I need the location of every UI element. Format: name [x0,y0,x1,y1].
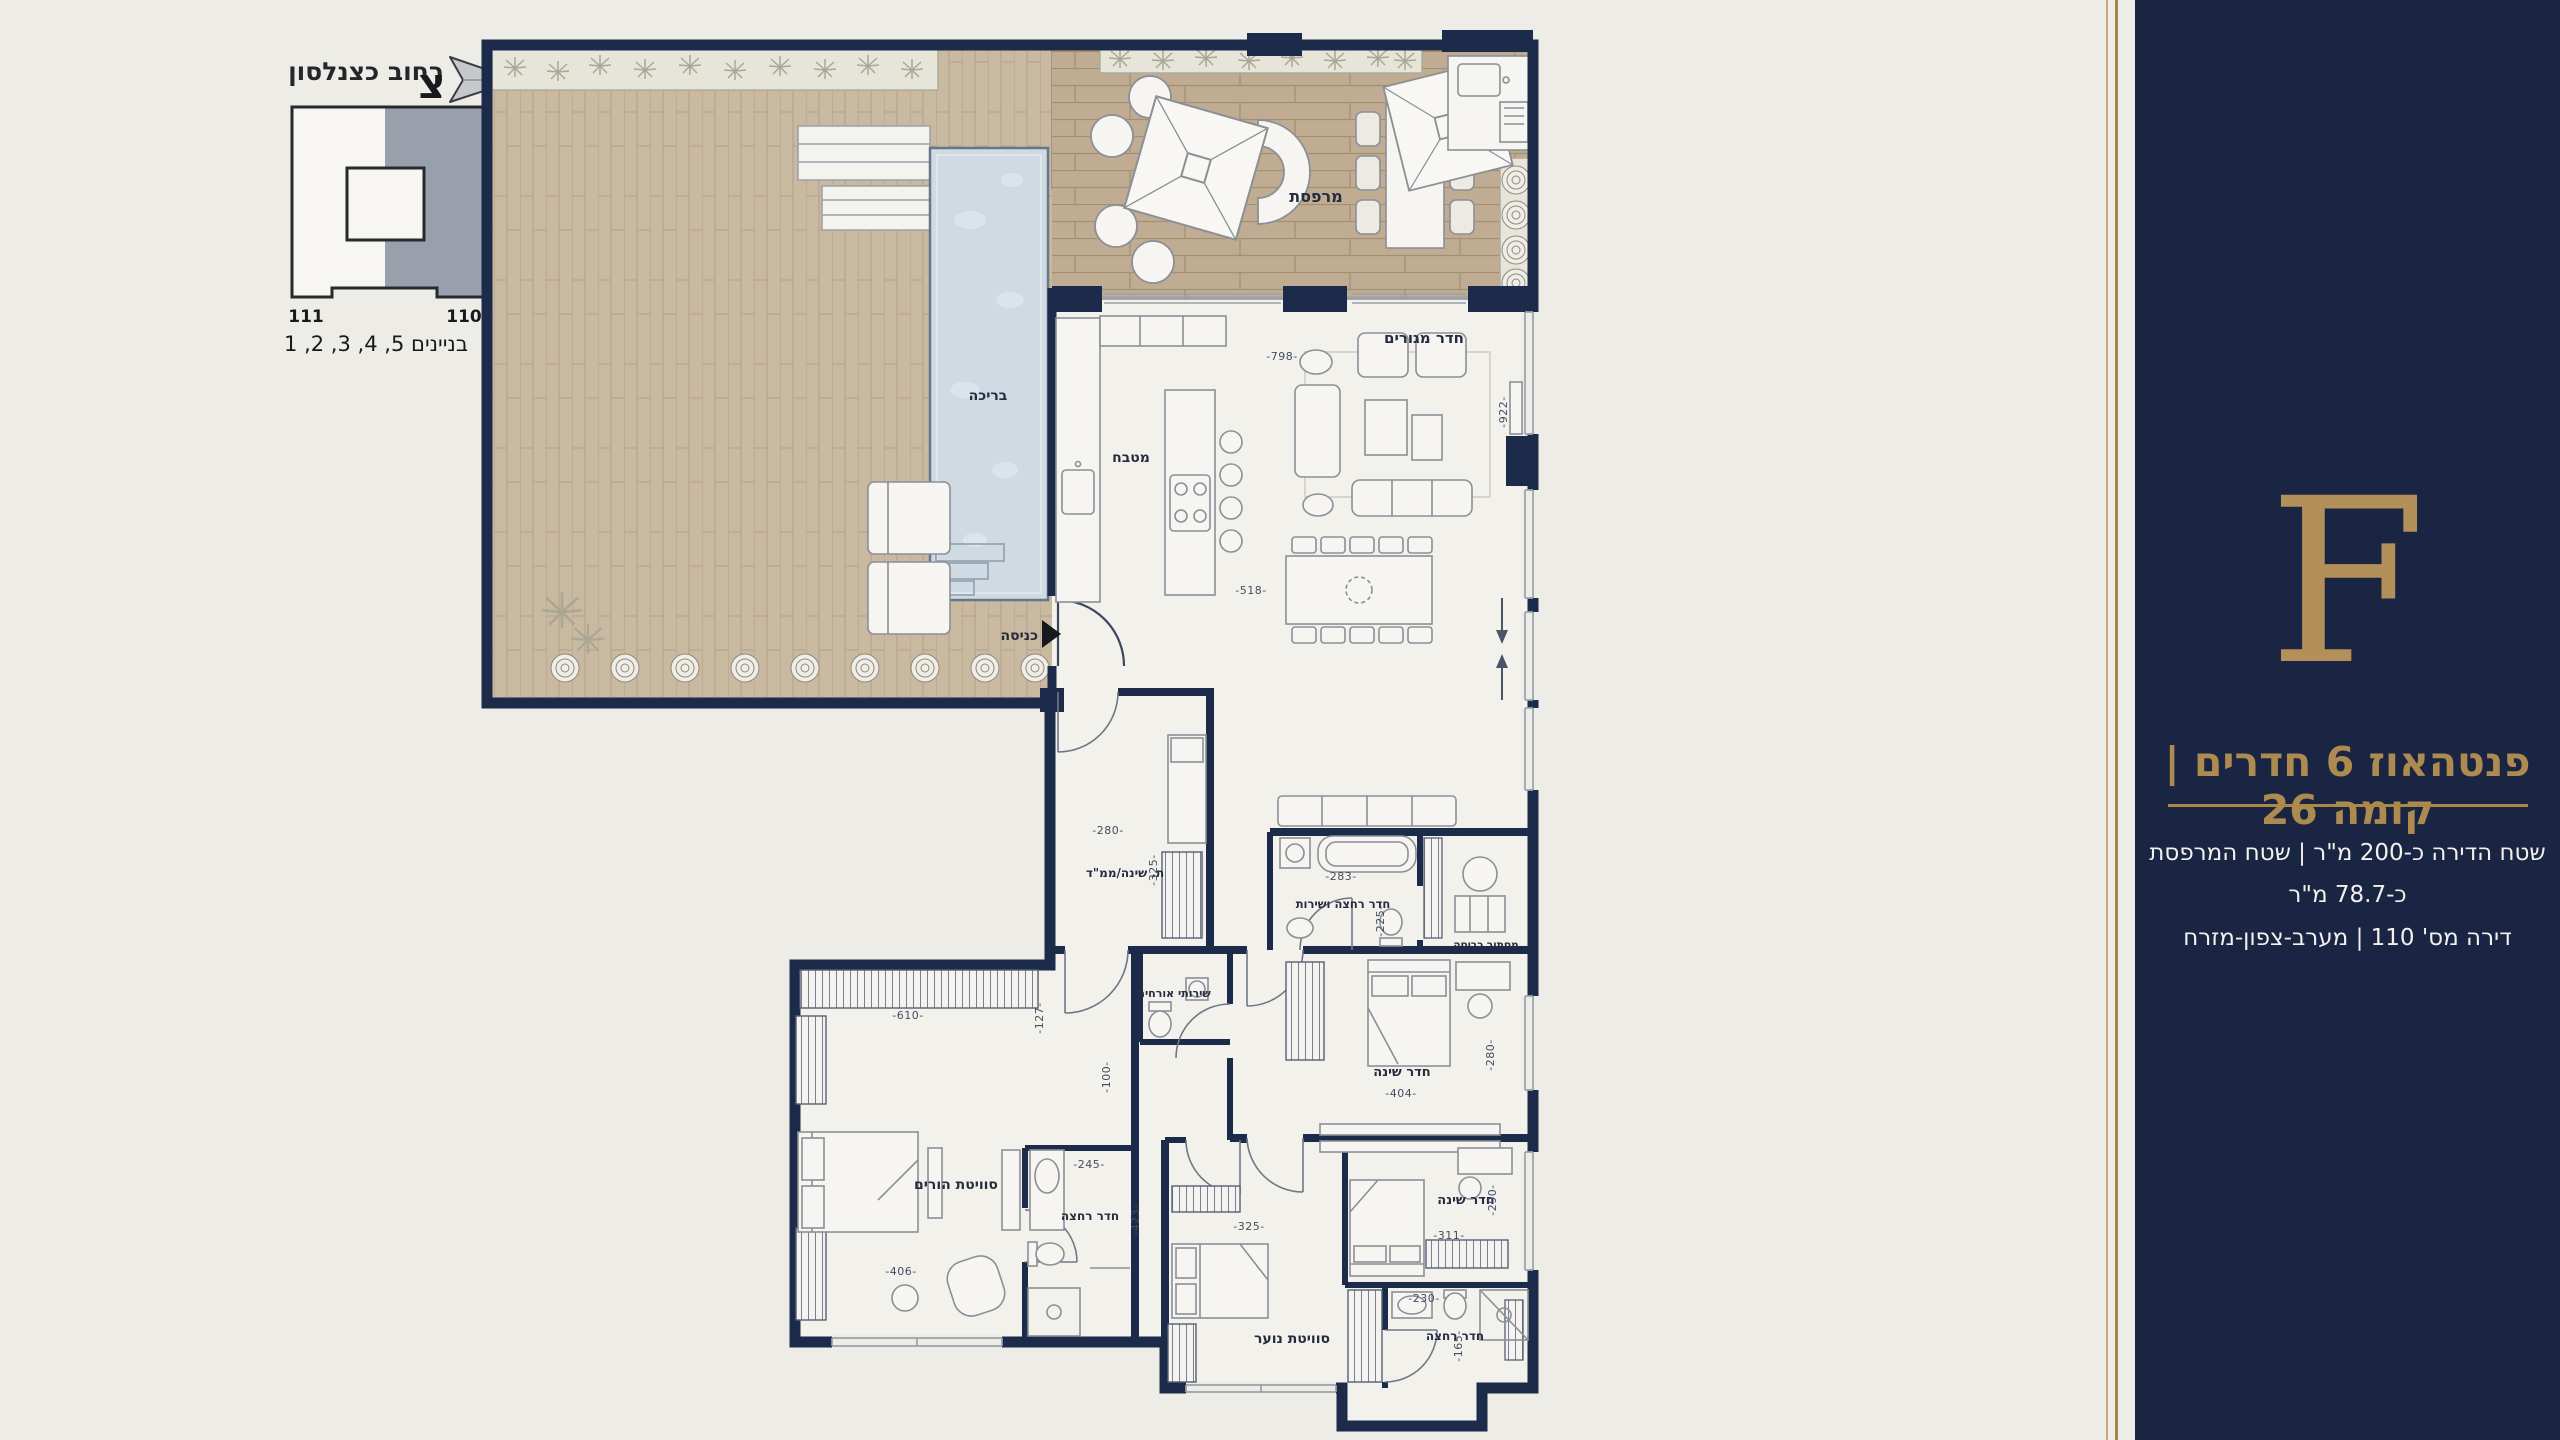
dim-230: -230- [1408,1292,1439,1305]
dim-798: -798- [1266,350,1297,363]
dim-280b: -280- [1484,1039,1497,1070]
dim-280a: -280- [1092,824,1123,837]
label-youth: סוויטת נוער [1254,1331,1330,1347]
label-entrance: כניסה [1000,628,1038,644]
label-laundry: מסתור כביסה [1453,939,1518,951]
floorplan: בריכה מרפסת חדר מגורים מטבח כניסה ת. שינ… [487,30,1539,1426]
dim-423: -423- [1129,1204,1142,1235]
label-pool: בריכה [969,388,1008,404]
unit-title: פנטהאוז 6 חדרים | קומה 26 [2135,738,2560,834]
unit-area-line: שטח הדירה כ-200 מ"ר | שטח המרפסת כ-78.7 … [2145,832,2550,917]
keyplan-110: 110 [446,307,482,327]
dim-325a: -325- [1147,854,1160,885]
terrace [1052,45,1533,300]
dim-290: -290- [1486,1184,1499,1215]
label-living: חדר מגורים [1384,329,1464,347]
dim-518: -518- [1235,584,1266,597]
label-bed1: חדר שינה [1373,1065,1430,1080]
dim-225: -225- [1374,905,1387,936]
keyplan-buildings: בניינים 5, 4, 3, 2, 1 [284,332,468,356]
dim-922: -922- [1497,396,1510,427]
dim-245: -245- [1073,1158,1104,1171]
dim-311: -311- [1433,1229,1464,1242]
dim-406: -406- [885,1265,916,1278]
pool-terrace [487,45,1052,703]
label-parents-bath: חדר רחצה [1061,1209,1119,1223]
gold-rule-inner [2115,0,2118,1440]
page: { "legend": { "street": "רחוב כצנלסון", … [0,0,2560,1440]
gold-rule-outer [2106,0,2108,1440]
unit-number-line: דירה מס' 110 | מערב-צפון-מזרח [2145,917,2550,959]
keyplan-111: 111 [288,307,324,327]
unit-details: שטח הדירה כ-200 מ"ר | שטח המרפסת כ-78.7 … [2145,832,2550,959]
dim-127: -127- [1033,1002,1046,1033]
label-parents: סוויטת הורים [914,1177,998,1193]
label-kitchen: מטבח [1112,450,1150,466]
dim-100: -100- [1100,1061,1113,1092]
dim-283: -283- [1325,870,1356,883]
dim-165: -165- [1452,1330,1465,1361]
dim-404: -404- [1385,1087,1416,1100]
keyplan-core [347,168,424,240]
outdoor-kitchen [1448,56,1533,150]
label-terrace: מרפסת [1289,187,1343,206]
info-sidebar: F פנטהאוז 6 חדרים | קומה 26 שטח הדירה כ-… [2135,0,2560,1440]
unit-letter: F [2135,468,2560,696]
gold-divider [2168,804,2528,807]
dim-325b: -325- [1233,1220,1264,1233]
mamad-furniture [1162,735,1206,938]
north-letter: צ [418,59,445,108]
label-guest-wc: שירותי אורחים [1137,987,1211,1000]
dim-610: -610- [892,1009,923,1022]
dining-set [1286,537,1432,643]
